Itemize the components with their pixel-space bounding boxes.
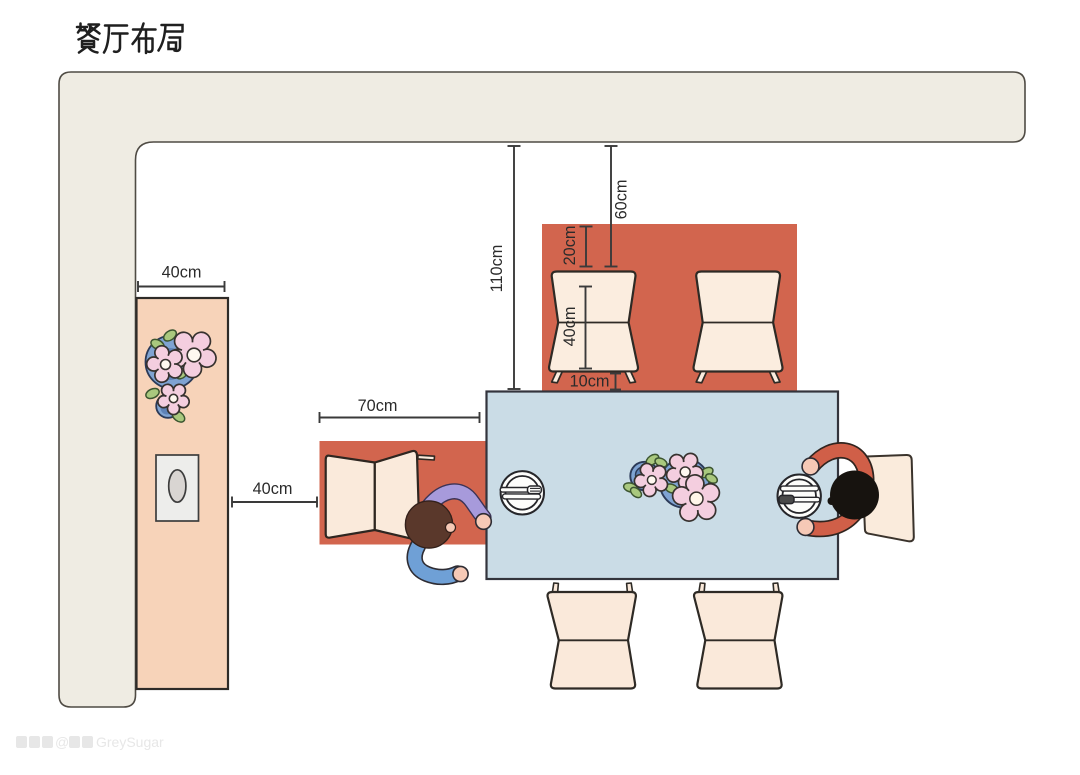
svg-text:20cm: 20cm (561, 226, 579, 266)
svg-text:40cm: 40cm (561, 307, 579, 347)
svg-text:110cm: 110cm (488, 245, 506, 293)
svg-text:10cm: 10cm (570, 373, 610, 391)
svg-text:@: @ (55, 734, 69, 750)
svg-text:40cm: 40cm (162, 264, 202, 282)
svg-text:40cm: 40cm (253, 480, 293, 498)
svg-text:70cm: 70cm (358, 397, 398, 415)
svg-text:GreySugar: GreySugar (96, 734, 164, 750)
svg-text:60cm: 60cm (612, 180, 630, 220)
